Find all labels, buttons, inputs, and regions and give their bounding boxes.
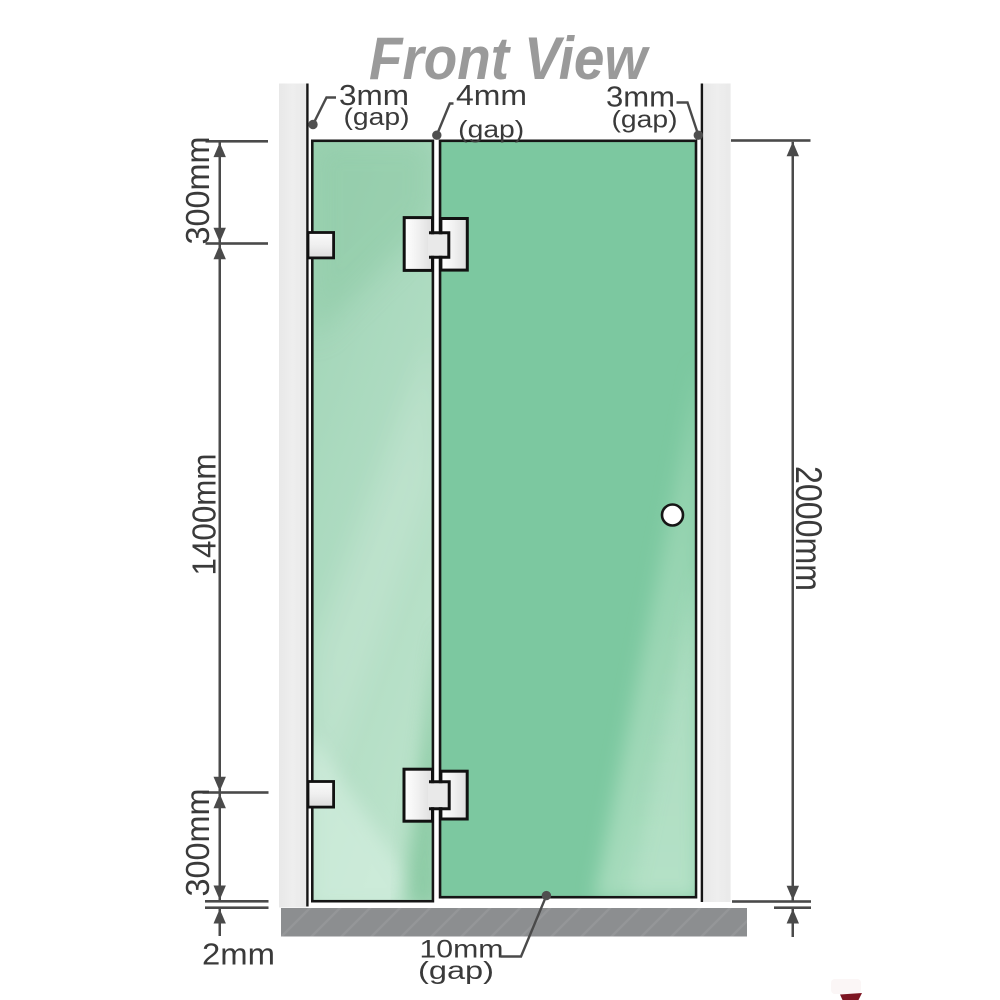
svg-text:(gap): (gap)	[418, 957, 494, 985]
svg-text:4mm: 4mm	[456, 80, 527, 112]
svg-text:(gap): (gap)	[458, 117, 524, 144]
svg-text:300mm: 300mm	[179, 137, 216, 245]
svg-text:2mm: 2mm	[202, 937, 275, 972]
svg-text:300mm: 300mm	[179, 789, 216, 897]
svg-text:1400mm: 1400mm	[186, 454, 223, 576]
svg-text:(gap): (gap)	[612, 107, 678, 134]
svg-text:(gap): (gap)	[344, 104, 410, 131]
svg-text:2000mm: 2000mm	[788, 466, 829, 591]
